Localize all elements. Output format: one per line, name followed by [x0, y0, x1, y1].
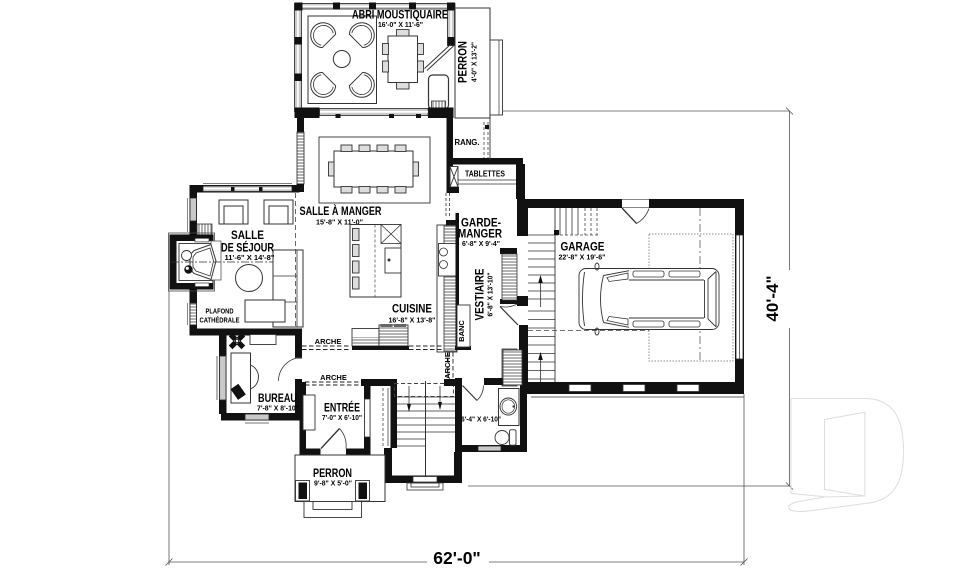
svg-text:9'-8" X 5'-0": 9'-8" X 5'-0": [314, 479, 352, 488]
svg-text:16'-0" X 11'-6": 16'-0" X 11'-6": [378, 20, 423, 29]
svg-text:CUISINE: CUISINE: [392, 304, 432, 316]
svg-text:TABLETTES: TABLETTES: [465, 170, 506, 179]
svg-text:PLAFOND: PLAFOND: [206, 307, 234, 316]
svg-text:6'-8" X 9'-4": 6'-8" X 9'-4": [462, 239, 500, 248]
svg-text:6'-4" X 6'-10": 6'-4" X 6'-10": [461, 415, 501, 424]
svg-text:CATHÉDRALE: CATHÉDRALE: [200, 316, 240, 325]
svg-text:11'-6" X 14'-8": 11'-6" X 14'-8": [225, 253, 275, 262]
svg-text:ARCHE: ARCHE: [315, 337, 342, 346]
svg-text:16'-8" X 13'-8": 16'-8" X 13'-8": [389, 316, 436, 325]
svg-text:7'-0" X 6'-10": 7'-0" X 6'-10": [322, 413, 362, 422]
svg-text:40'-4": 40'-4": [763, 275, 782, 321]
svg-text:RANG.: RANG.: [455, 138, 480, 147]
svg-text:ARCHE: ARCHE: [443, 352, 452, 379]
svg-text:SALLE À MANGER: SALLE À MANGER: [300, 205, 383, 218]
svg-text:SALLE: SALLE: [231, 230, 264, 242]
svg-text:7'-8" X 8'-10": 7'-8" X 8'-10": [257, 404, 299, 413]
svg-text:ARCHE: ARCHE: [320, 373, 347, 382]
svg-text:62'-0": 62'-0": [433, 548, 480, 568]
svg-text:PERRON: PERRON: [458, 41, 470, 83]
svg-text:BANC: BANC: [457, 320, 466, 342]
svg-text:6'-8" X 13'-10": 6'-8" X 13'-10": [486, 272, 495, 316]
svg-text:22'-8" X 19'-6": 22'-8" X 19'-6": [559, 253, 606, 262]
svg-text:4'-0" X 13'-2": 4'-0" X 13'-2": [470, 42, 479, 82]
